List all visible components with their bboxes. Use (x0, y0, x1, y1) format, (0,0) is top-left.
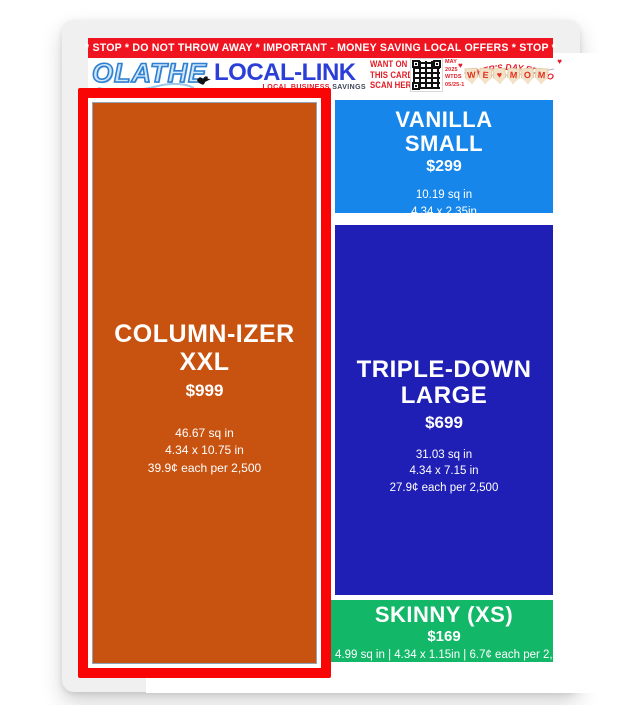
qr-finder-icon (412, 60, 420, 68)
ad-details: 4.99 sq in | 4.34 x 1.15in | 6.7¢ each p… (335, 647, 553, 664)
selection-highlight-rect: COLUMN-IZER XXL $999 46.67 sq in 4.34 x … (78, 88, 331, 678)
ad-price: $299 (335, 158, 553, 176)
ad-tile-vanilla-small[interactable]: VANILLA SMALL $299 10.19 sq in 4.34 x 2.… (335, 100, 553, 213)
local-link-logo: LOCAL-LINK (214, 59, 356, 87)
pennant-flag: O (520, 68, 534, 85)
qr-finder-icon (433, 60, 441, 68)
pennant-flag: W (464, 68, 478, 85)
qr-pattern (413, 61, 440, 89)
ad-price: $699 (335, 413, 553, 433)
pennant-flag: M (506, 68, 520, 85)
ad-title: TRIPLE-DOWN LARGE (335, 357, 553, 410)
ad-title: COLUMN-IZER XXL (93, 321, 316, 376)
pennant-flag: M (534, 68, 548, 85)
ad-tile-triple-down-large[interactable]: TRIPLE-DOWN LARGE $699 31.03 sq in 4.34 … (335, 225, 553, 595)
edition-badge: MOTHER'S DAY EDITION W E ♥ M O M ♥ ♥ (462, 55, 556, 95)
pennant-flag: E (478, 68, 492, 85)
we-love-mom-banner: W E ♥ M O M (465, 68, 548, 84)
ad-title: VANILLA SMALL (335, 108, 553, 156)
qr-finder-icon (412, 82, 420, 90)
ad-price: $169 (335, 628, 553, 645)
ad-details: 46.67 sq in 4.34 x 10.75 in 39.9¢ each p… (93, 425, 316, 477)
tagline-visible-part: SAVINGS (332, 84, 366, 91)
stop-warning-text: * STOP * DO NOT THROW AWAY * IMPORTANT -… (85, 42, 556, 54)
flyer-screenshot: * STOP * DO NOT THROW AWAY * IMPORTANT -… (0, 0, 642, 705)
ad-tile-columnizer-xxl-selected[interactable]: COLUMN-IZER XXL $999 46.67 sq in 4.34 x … (92, 102, 317, 664)
ad-price: $999 (93, 381, 316, 401)
ad-details: 31.03 sq in 4.34 x 7.15 in 27.9¢ each pe… (335, 447, 553, 497)
heart-icon: ♥ (492, 68, 506, 85)
qr-code-icon (410, 58, 443, 92)
ad-title: SKINNY (XS) (335, 603, 553, 627)
heart-icon: ♥ (557, 57, 562, 66)
heart-icon: ♥ (458, 61, 463, 70)
ad-text-wrapper: SKINNY (XS) $169 4.99 sq in | 4.34 x 1.1… (335, 603, 553, 664)
